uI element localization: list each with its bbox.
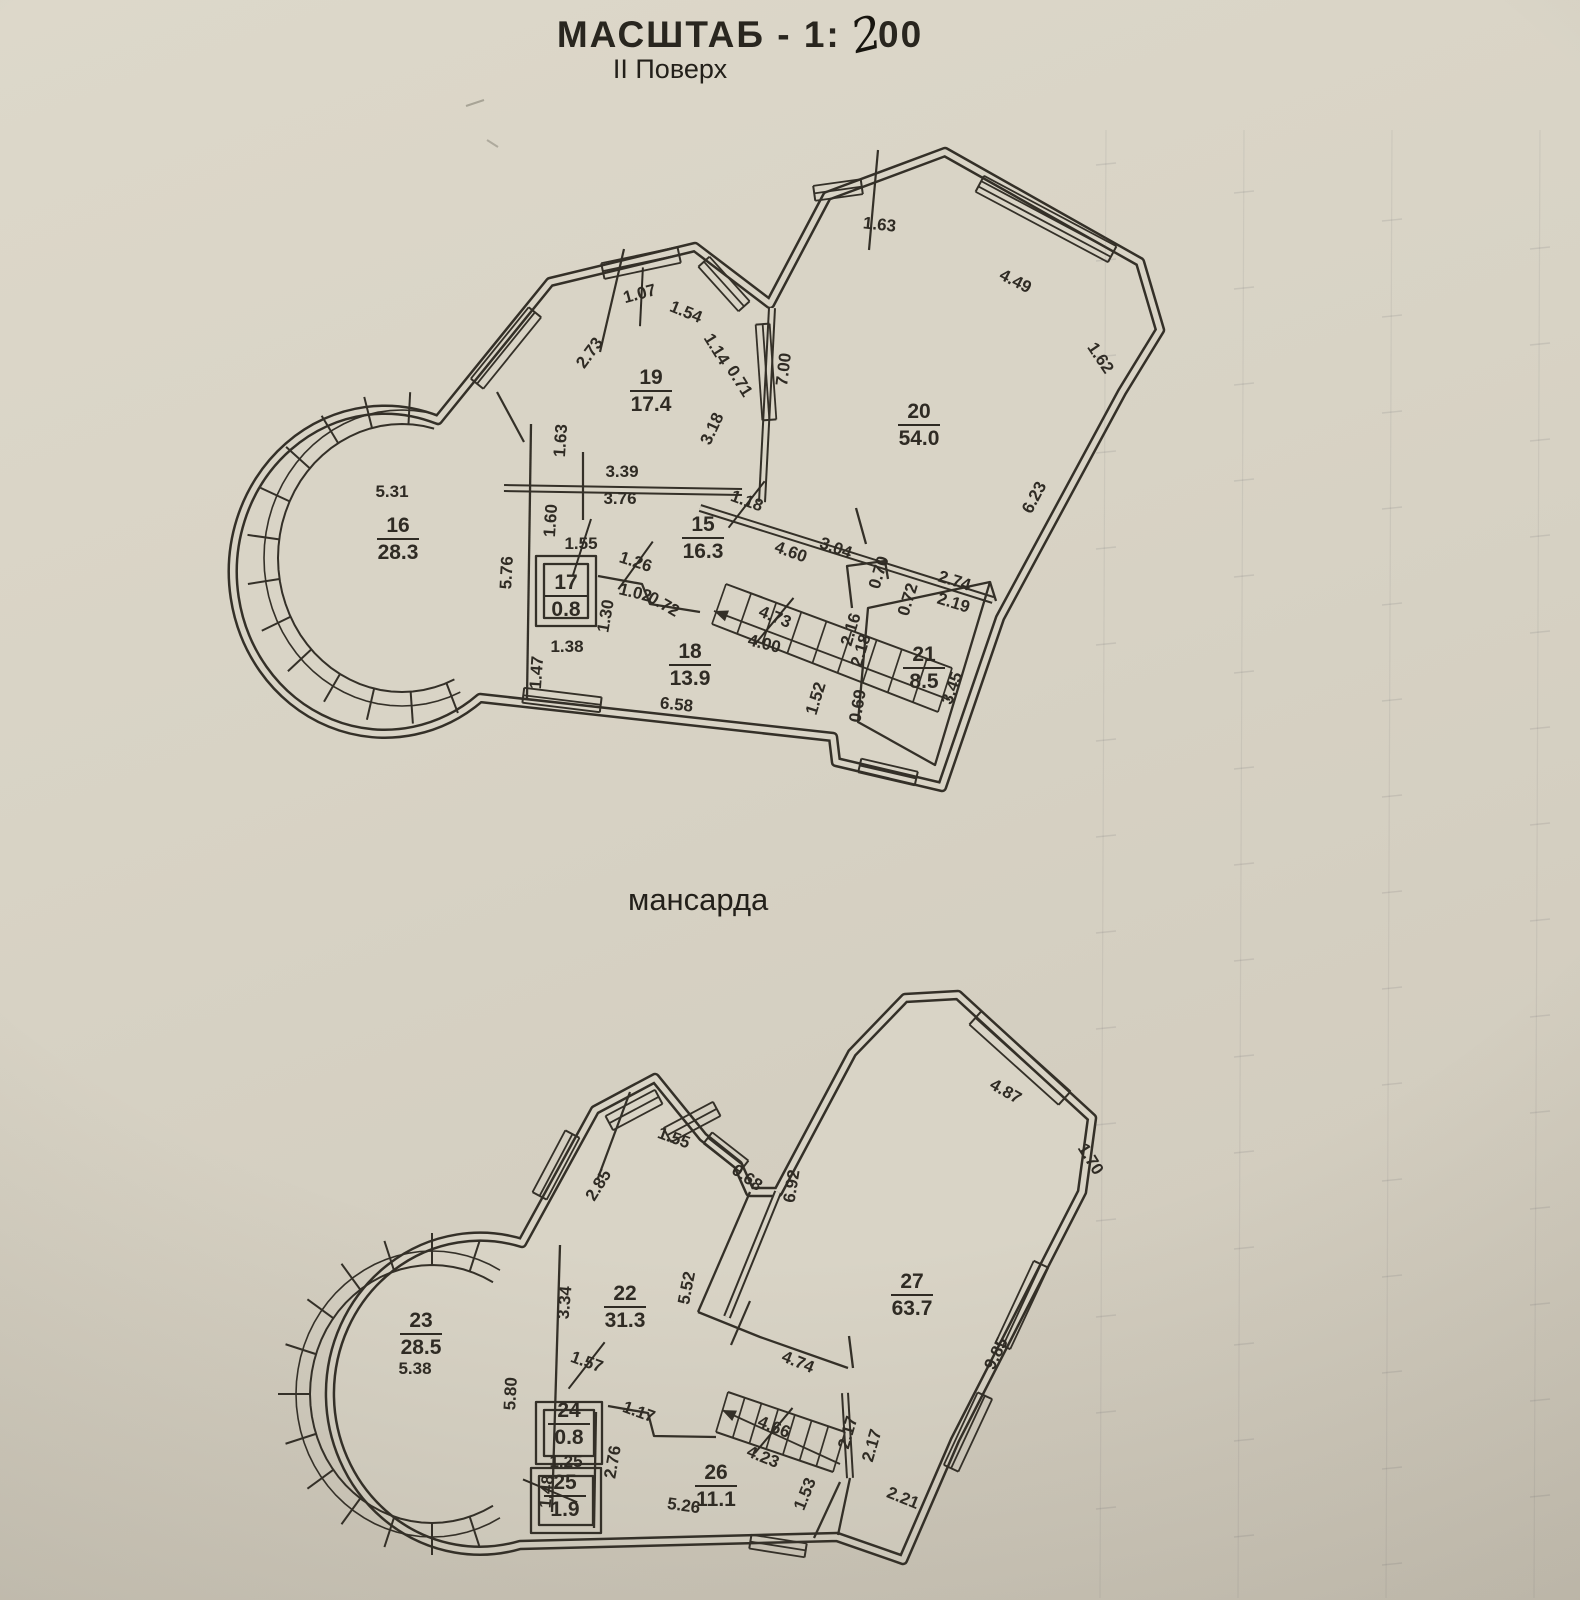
dimension-label: 1.38 [550,637,583,656]
fold-tick [1530,1303,1550,1305]
room-area: 31.3 [605,1309,646,1332]
fold-tick [1530,343,1550,345]
room-number: 27 [900,1270,923,1293]
room-area: 16.3 [683,540,724,563]
fold-tick [1234,575,1254,577]
fold-line [1534,130,1540,1598]
room-area: 0.8 [554,1426,584,1449]
dimension-label: 1.60 [540,503,561,537]
svg-text:1.38: 1.38 [550,637,583,656]
room-number: 15 [691,513,715,536]
fold-tick [1096,547,1116,549]
room-number: 25 [553,1471,577,1494]
dimension-label: 3.76 [603,489,636,508]
svg-text:7.00: 7.00 [772,352,795,387]
fold-tick [1234,1439,1254,1441]
fold-tick [1530,919,1550,921]
fold-tick [1530,535,1550,537]
fold-tick [1382,699,1402,701]
svg-text:5.31: 5.31 [375,482,408,501]
fold-tick [1382,603,1402,605]
fold-tick [1096,931,1116,933]
room-area: 54.0 [899,427,940,450]
room-area: 63.7 [892,1297,933,1320]
fold-tick [1096,1027,1116,1029]
fold-tick [1530,247,1550,249]
fold-tick [1530,631,1550,633]
fold-tick [1234,767,1254,769]
fold-tick [1530,1207,1550,1209]
fold-tick [1382,891,1402,893]
fold-tick [1234,479,1254,481]
room-area: 13.9 [670,667,711,690]
fold-tick [1096,1123,1116,1125]
svg-text:1.63: 1.63 [550,423,571,457]
fold-tick [1382,1179,1402,1181]
fold-tick [1530,1495,1550,1497]
fold-tick [1234,1535,1254,1537]
attic-bay-window-spoke [307,1299,333,1318]
svg-text:1.60: 1.60 [540,503,561,537]
fold-tick [1234,671,1254,673]
stray-mark [487,140,498,147]
floor-plan-drawing: 1628.31917.42054.01516.3170.81813.9218.5… [0,0,1580,1600]
fold-tick [1382,1563,1402,1565]
fold-tick [1096,739,1116,741]
room-area: 0.8 [551,598,581,621]
dimension-label: 3.39 [605,462,638,481]
fold-tick [1530,823,1550,825]
svg-text:3.39: 3.39 [605,462,638,481]
fold-tick [1530,1015,1550,1017]
dimension-label: 5.80 [500,1377,521,1411]
svg-text:1.63: 1.63 [862,213,897,235]
fold-tick [1096,1315,1116,1317]
attic-bay-window-spoke [286,1344,316,1354]
fold-tick [1382,219,1402,221]
fold-tick [1530,1111,1550,1113]
stray-mark [466,100,484,106]
fold-tick [1234,1247,1254,1249]
attic-bay-window-spoke [286,1434,316,1444]
svg-text:1.47: 1.47 [526,655,547,689]
fold-tick [1096,1411,1116,1413]
fold-tick [1096,1219,1116,1221]
room-area: 28.3 [378,541,419,564]
fold-tick [1382,987,1402,989]
fold-tick [1530,1399,1550,1401]
fold-tick [1530,439,1550,441]
fold-tick [1382,1083,1402,1085]
dimension-label: 1.25 [549,1452,582,1471]
room-area: 17.4 [631,393,672,416]
room-number: 24 [557,1399,581,1422]
room-number: 19 [639,366,662,389]
fold-tick [1096,451,1116,453]
fold-tick [1530,727,1550,729]
svg-text:5.80: 5.80 [500,1377,521,1411]
room-number: 26 [704,1461,727,1484]
room-number: 18 [678,640,702,663]
fold-tick [1096,835,1116,837]
room-number: 23 [409,1309,432,1332]
fold-tick [1234,383,1254,385]
room-number: 22 [613,1282,636,1305]
room-area: 8.5 [909,670,939,693]
fold-tick [1096,643,1116,645]
dimension-label: 5.38 [398,1359,431,1378]
fold-tick [1382,1371,1402,1373]
fold-tick [1234,191,1254,193]
fold-tick [1234,287,1254,289]
fold-tick [1234,1055,1254,1057]
attic-bay-window-spoke [307,1470,333,1489]
room-number: 16 [386,514,409,537]
dimension-label: 1.47 [526,655,547,689]
fold-tick [1382,411,1402,413]
fold-tick [1234,863,1254,865]
fold-tick [1234,1343,1254,1345]
dimension-label: 6.58 [659,693,694,715]
fold-tick [1382,1467,1402,1469]
fold-tick [1096,163,1116,165]
svg-text:6.58: 6.58 [659,693,694,715]
dimension-label: 7.00 [772,352,795,387]
fold-tick [1096,1507,1116,1509]
dimension-label: 1.63 [550,423,571,457]
dimension-label: 5.31 [375,482,408,501]
fold-tick [1234,1151,1254,1153]
fold-tick [1382,315,1402,317]
dimension-label: 1.63 [862,213,897,235]
svg-text:3.34: 3.34 [554,1285,576,1320]
svg-text:3.76: 3.76 [603,489,636,508]
dimension-label: 3.34 [554,1285,576,1320]
svg-text:1.25: 1.25 [549,1452,582,1471]
fold-tick [1234,959,1254,961]
svg-text:5.38: 5.38 [398,1359,431,1378]
room-area: 11.1 [696,1488,736,1511]
scanned-floor-plan-page: МАСШТАБ - 1:200 II Поверх мансарда 1628.… [0,0,1580,1600]
room-number: 20 [907,400,930,423]
room-area: 28.5 [401,1336,442,1359]
svg-text:5.76: 5.76 [496,556,517,590]
fold-tick [1382,1275,1402,1277]
second-floor-walls [233,150,1160,787]
fold-tick [1382,507,1402,509]
fold-line [1386,130,1392,1598]
dimension-label: 5.76 [496,556,517,590]
fold-tick [1382,795,1402,797]
room-number: 21 [912,643,936,666]
